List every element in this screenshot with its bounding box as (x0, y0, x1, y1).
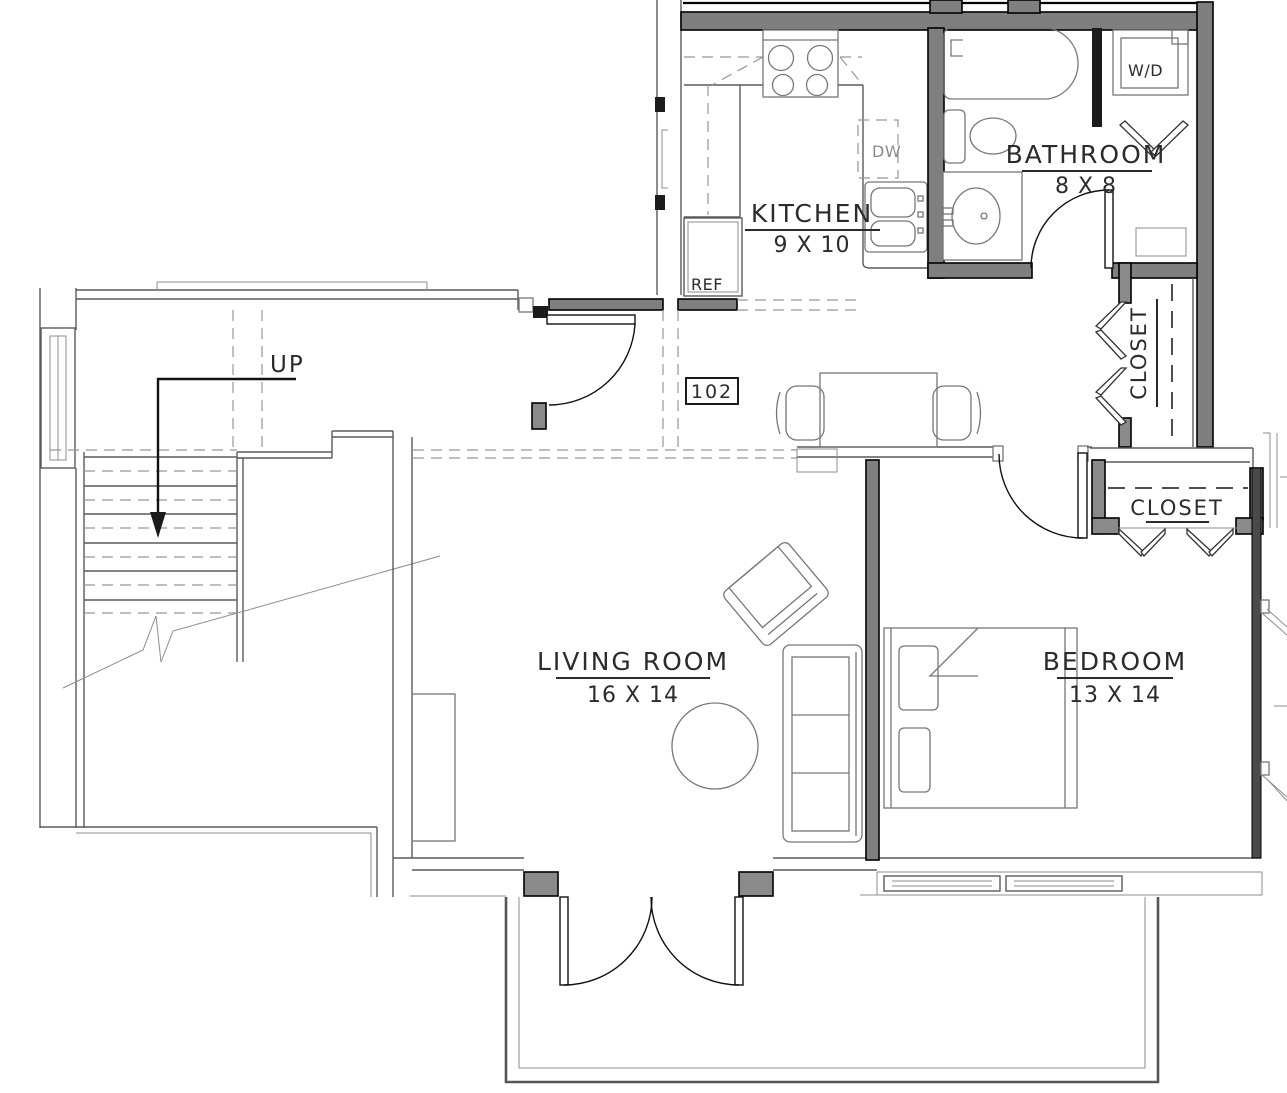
up-label: UP (270, 352, 305, 378)
adjacent-unit-fragments (1261, 433, 1287, 801)
stair-hall-window (41, 328, 75, 468)
floor-plan-sheet: UP (0, 0, 1287, 1093)
window (1006, 876, 1122, 891)
corridor-south-wall (237, 431, 393, 458)
living-room-name: LIVING ROOM (537, 647, 729, 676)
hall-closet-label: CLOSET (1127, 299, 1157, 407)
bedroom-door (999, 453, 1087, 538)
kitchen-dims: 9 X 10 (773, 233, 850, 258)
refrigerator: REF (684, 218, 742, 296)
kitchen-name: KITCHEN (751, 199, 873, 228)
entry-dining: 102 (413, 298, 1092, 472)
unit-number-plate: 102 (686, 378, 738, 404)
sheet-fold (930, 628, 978, 676)
kitchen-sink (865, 182, 927, 252)
corridor-north-wall (76, 282, 518, 310)
living-room-label: LIVING ROOM 16 X 14 (537, 647, 729, 708)
hall-closet: CLOSET (1096, 263, 1193, 447)
bathroom-south-wall-left (928, 263, 1032, 278)
up-arrow (158, 379, 296, 514)
pillow (899, 646, 938, 710)
stair-hall: UP (40, 282, 518, 897)
bedroom-windows (860, 872, 1262, 895)
bathroom: W/D BATHROOM 8 X 8 (928, 28, 1197, 278)
outlet (655, 97, 665, 112)
pillow (899, 728, 930, 792)
bathroom-west-wall (928, 28, 944, 278)
bedroom-east-wall (1252, 468, 1261, 858)
sofa (783, 645, 862, 842)
bathtub (944, 28, 1078, 99)
dining-chair (933, 386, 971, 440)
floor-plan-drawing: UP (0, 0, 1287, 1093)
bedroom-closet-label: CLOSET (1130, 496, 1224, 522)
bathroom-door (1031, 190, 1113, 268)
washer-dryer: W/D (1113, 30, 1188, 95)
dishwasher: DW (858, 120, 901, 178)
break-line (63, 556, 440, 688)
closet-shelf (1136, 228, 1186, 256)
patio (506, 897, 1158, 1082)
unit-entry-door (547, 315, 635, 405)
stove (763, 30, 838, 97)
stairs-up-annotation: UP (150, 352, 305, 538)
dashed-boundaries (413, 300, 860, 458)
north-demising-wall (681, 12, 1212, 30)
lower-left-outline (40, 827, 377, 897)
bedroom-closet-bifold-doors (1119, 529, 1233, 556)
kitchen-label: KITCHEN 9 X 10 (745, 199, 880, 258)
unit-number: 102 (691, 381, 733, 403)
outlet (655, 195, 665, 210)
hall-closet-bifold-doors (1096, 302, 1126, 425)
dining-table (777, 373, 981, 447)
refrigerator-label: REF (691, 275, 723, 294)
hall-closet-name: CLOSET (1127, 306, 1151, 400)
bedroom-name: BEDROOM (1043, 647, 1188, 676)
bedroom-dims: 13 X 14 (1069, 683, 1161, 708)
dishwasher-label: DW (872, 142, 901, 161)
up-arrowhead (150, 512, 166, 538)
stairs (63, 452, 440, 828)
bathroom-sink (943, 172, 1022, 260)
stair-treads (84, 457, 237, 613)
living-room-dims: 16 X 14 (587, 683, 679, 708)
bedroom-closet-name: CLOSET (1130, 496, 1224, 520)
armchair (721, 540, 830, 648)
bathroom-dims: 8 X 8 (1055, 174, 1117, 199)
bedroom-divider-wall (866, 460, 879, 860)
dining-half-wall (797, 446, 1092, 472)
kitchen: DW REF KITCHEN 9 X 10 (684, 30, 928, 296)
bathroom-name: BATHROOM (1006, 140, 1167, 169)
coffee-table (672, 703, 758, 789)
tub-faucet (951, 40, 963, 56)
bathroom-label: BATHROOM 8 X 8 (1006, 140, 1167, 199)
dining-chair (786, 386, 824, 440)
east-hall-wall (1197, 2, 1213, 447)
washer-dryer-label: W/D (1128, 61, 1163, 80)
tub-partition-wall (1092, 28, 1102, 127)
console-table (412, 694, 455, 841)
window (884, 876, 1000, 891)
entry-french-doors (560, 897, 743, 985)
bedroom-closet: CLOSET (1090, 448, 1263, 556)
